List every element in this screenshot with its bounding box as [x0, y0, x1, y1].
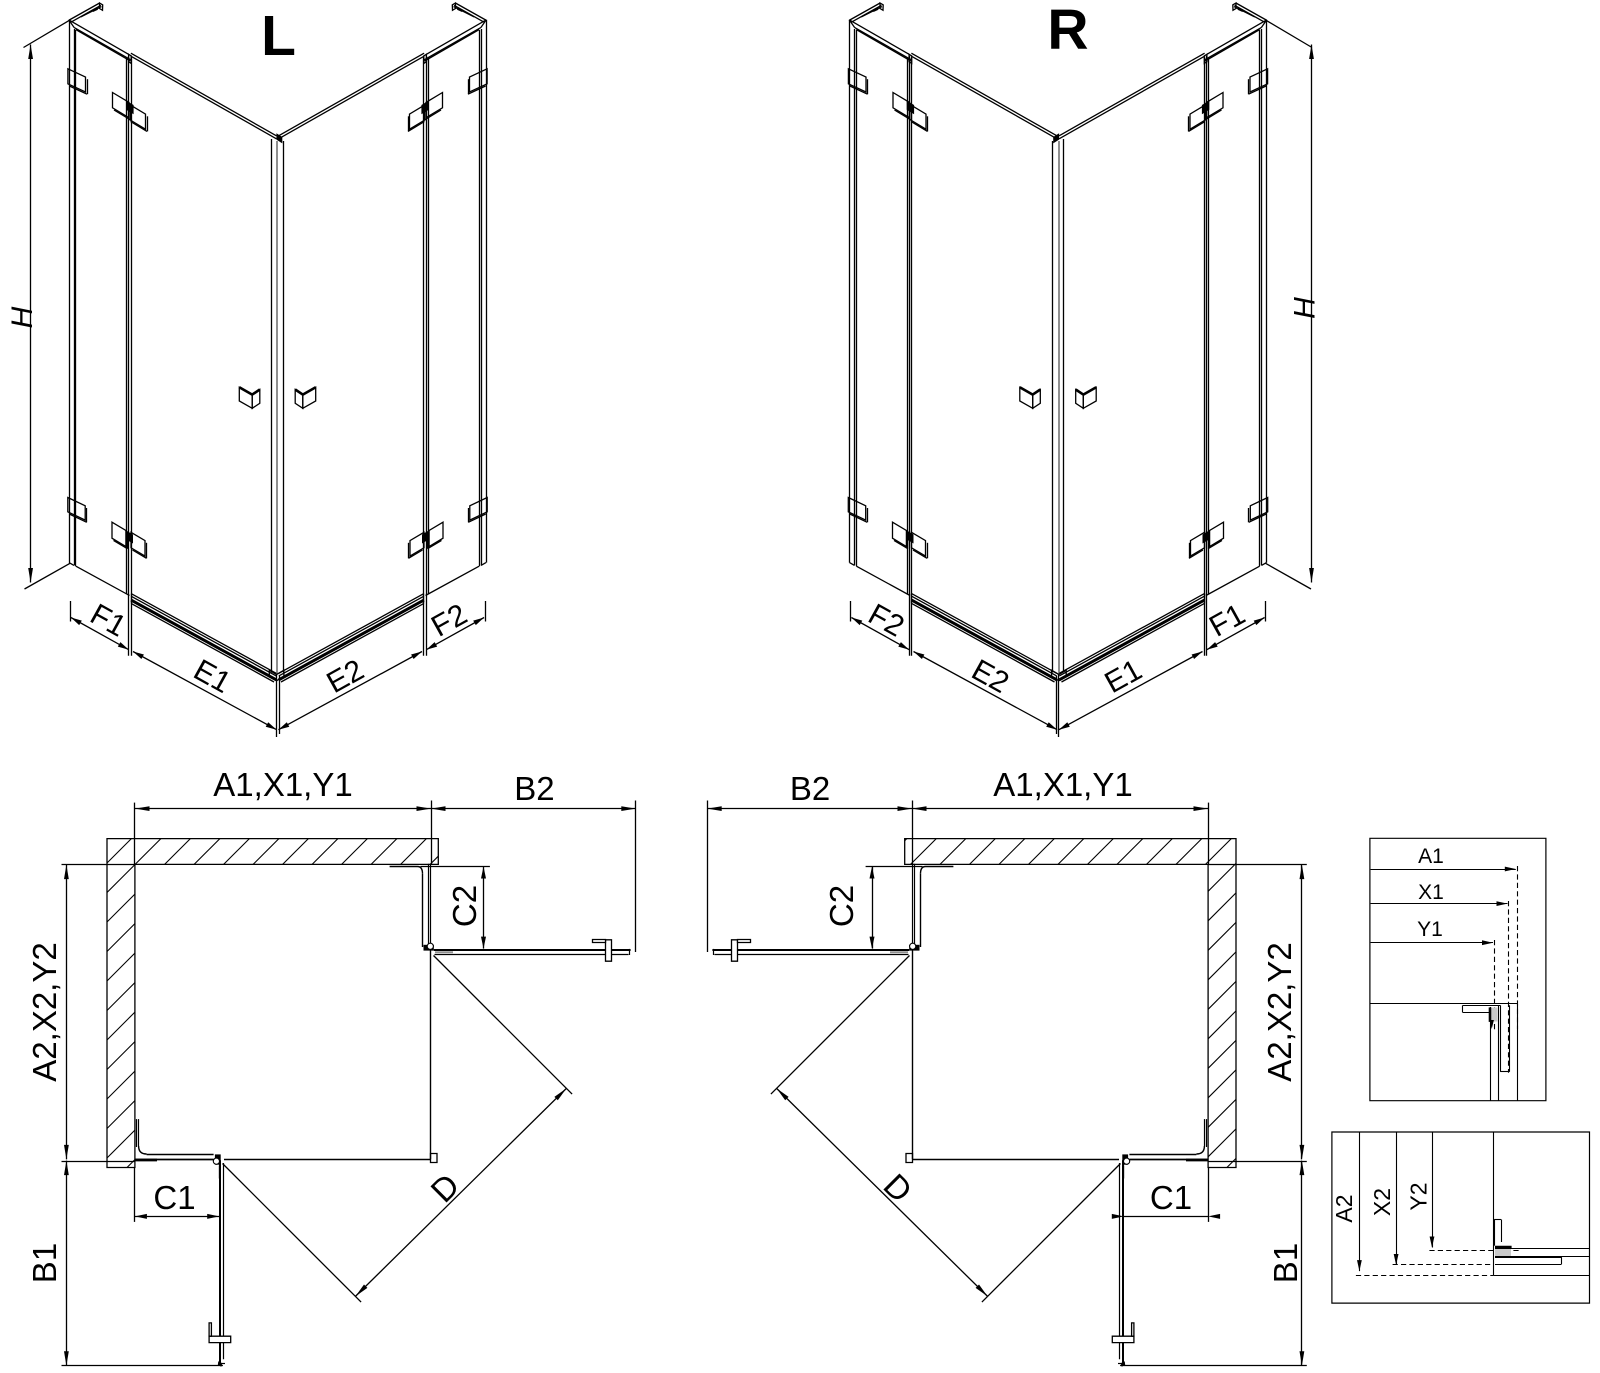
svg-text:Y1: Y1	[1417, 918, 1443, 941]
svg-text:H: H	[6, 306, 39, 328]
svg-text:B2: B2	[790, 770, 830, 807]
svg-text:A2: A2	[1331, 1194, 1357, 1222]
svg-text:B1: B1	[1267, 1243, 1304, 1283]
svg-text:B2: B2	[514, 770, 554, 807]
svg-text:A1,X1,Y1: A1,X1,Y1	[993, 766, 1132, 803]
svg-text:A2,X2,Y2: A2,X2,Y2	[26, 942, 63, 1081]
svg-text:A1: A1	[1418, 845, 1444, 868]
svg-text:C1: C1	[153, 1179, 195, 1216]
svg-text:C2: C2	[823, 885, 860, 927]
svg-text:B1: B1	[26, 1243, 63, 1283]
svg-text:X2: X2	[1369, 1188, 1395, 1216]
svg-text:L: L	[261, 4, 296, 68]
svg-text:A1,X1,Y1: A1,X1,Y1	[213, 766, 352, 803]
svg-text:Y2: Y2	[1406, 1182, 1432, 1210]
svg-text:R: R	[1047, 0, 1088, 62]
svg-text:C2: C2	[446, 885, 483, 927]
svg-text:H: H	[1289, 297, 1322, 319]
svg-text:A2,X2,Y2: A2,X2,Y2	[1261, 942, 1298, 1081]
svg-text:C1: C1	[1150, 1179, 1192, 1216]
svg-text:X1: X1	[1418, 881, 1444, 904]
